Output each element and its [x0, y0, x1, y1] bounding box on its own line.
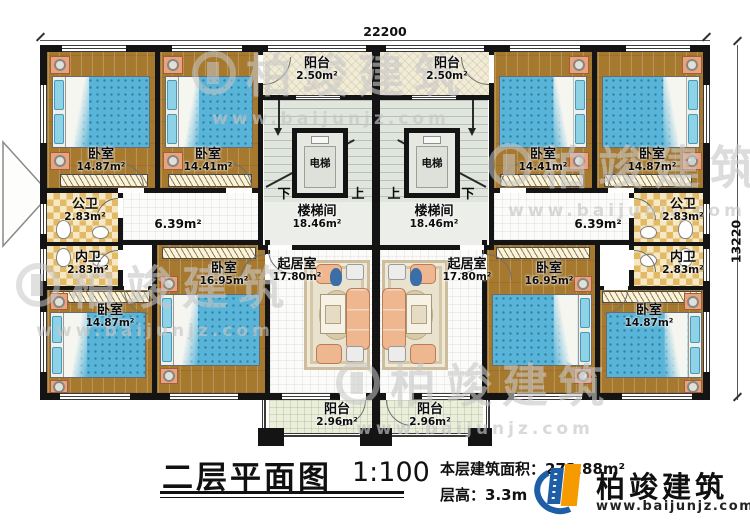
room-name: 卧室 [519, 148, 568, 162]
nightstand [163, 152, 183, 170]
floor-plan: 22200 13220 电梯 电梯 下 上 上 下 卧室14.87m² 卧室14… [0, 0, 750, 530]
bed [602, 76, 700, 148]
room-area: 2.96m² [316, 417, 357, 428]
window [703, 312, 710, 372]
room-area: 14.87m² [628, 162, 677, 173]
label-ensuite-bath-left: 内卫2.83m² [67, 251, 108, 276]
label-public-bath-left: 公卫2.83m² [64, 198, 105, 223]
room-name: 卧室 [525, 262, 574, 276]
label-bedroom-tr-outer: 卧室14.87m² [628, 148, 677, 173]
room-area: 14.41m² [184, 162, 233, 173]
room-area: 2.83m² [67, 265, 108, 276]
label-hallway-left: 6.39m² [154, 218, 201, 231]
stair-arrow [472, 100, 474, 130]
window [510, 45, 580, 52]
window [62, 45, 126, 52]
room-area: 14.87m² [625, 318, 674, 329]
armchair [346, 264, 364, 280]
bed-mattress [174, 295, 259, 365]
title-underline [160, 491, 404, 494]
stair-arrow-head [274, 128, 282, 136]
window [626, 45, 690, 52]
nightstand [569, 56, 589, 74]
nightstand [50, 293, 68, 310]
nightstand [50, 56, 70, 74]
elevator-label: 电梯 [422, 156, 443, 171]
stair-arrow [278, 100, 280, 130]
bed [160, 294, 260, 366]
room-area: 16.95m² [200, 276, 249, 287]
armchair [388, 264, 406, 280]
wall [372, 45, 380, 436]
bed [499, 76, 587, 148]
wall [258, 428, 284, 446]
label-balcony-top-left: 阳台2.50m² [296, 57, 337, 82]
floor-height-value: 3.3m [485, 486, 527, 504]
sink [92, 226, 109, 239]
door-gap [118, 250, 123, 270]
nightstand [163, 56, 183, 74]
bed-headboard [686, 77, 699, 147]
sofa [346, 288, 370, 350]
bed-mattress [500, 77, 573, 147]
room-name: 卧室 [86, 304, 135, 318]
stair-down-label: 下 [461, 183, 474, 202]
label-public-bath-right: 公卫2.83m² [662, 198, 703, 223]
room-name: 阳台 [426, 57, 467, 71]
room-area: 2.83m² [662, 265, 703, 276]
bed-headboard [166, 77, 179, 147]
nightstand [682, 56, 702, 74]
room-name: 卧室 [200, 262, 249, 276]
room-area: 17.80m² [443, 272, 492, 283]
door-gap [386, 393, 412, 400]
window [170, 393, 238, 400]
room-name: 楼梯间 [410, 205, 459, 219]
wall [152, 245, 157, 393]
bed [165, 76, 253, 148]
window [60, 393, 130, 400]
room-area: 14.87m² [86, 318, 135, 329]
stair-up-label: 上 [351, 183, 364, 202]
label-bedroom-tl-inner: 卧室14.41m² [184, 148, 233, 173]
coffee-table [320, 294, 346, 334]
room-name: 公卫 [662, 198, 703, 212]
stair-arrow-head [468, 128, 476, 136]
elevator: 电梯 [292, 128, 348, 198]
nightstand [684, 380, 702, 393]
wall [592, 45, 597, 192]
bed-mattress [66, 77, 149, 147]
title-underline [160, 497, 404, 498]
bed-mattress [493, 295, 578, 365]
sofa [382, 288, 406, 350]
label-bedroom-bl-outer: 卧室14.87m² [86, 304, 135, 329]
wall [468, 428, 492, 446]
wall [155, 45, 160, 192]
window [412, 95, 456, 100]
window [703, 85, 710, 143]
sofa-seat [410, 344, 436, 364]
door-gap [226, 188, 252, 193]
balcony-railing [386, 45, 484, 52]
nightstand [574, 368, 592, 384]
armchair [346, 346, 364, 362]
bed-mattress [179, 77, 252, 147]
room-name: 卧室 [77, 148, 126, 162]
room-area: 2.83m² [662, 212, 703, 223]
label-living-right: 起居室17.80m² [443, 258, 492, 283]
nightstand [684, 293, 702, 310]
person-figure [330, 268, 342, 286]
nightstand [160, 368, 178, 384]
label-bedroom-tr-inner: 卧室14.41m² [519, 148, 568, 173]
elevator-label: 电梯 [310, 156, 331, 171]
dimension-tick [733, 392, 742, 401]
window [40, 204, 47, 234]
room-area: 2.50m² [296, 71, 337, 82]
person-figure [410, 268, 422, 286]
room-area: 18.46m² [293, 219, 342, 230]
bed-headboard [688, 313, 701, 377]
room-name: 卧室 [628, 148, 677, 162]
room-area: 2.96m² [409, 417, 450, 428]
plan-scale: 1:100 [352, 457, 430, 488]
floor-height-label: 层高： [440, 486, 485, 504]
balcony-railing [268, 45, 366, 52]
elevator: 电梯 [404, 128, 460, 198]
window [422, 393, 470, 400]
wardrobe [496, 247, 590, 259]
bed-headboard [51, 313, 64, 377]
room-area: 14.41m² [519, 162, 568, 173]
window [40, 312, 47, 372]
brand-url: www.baijunjz.com [596, 499, 750, 514]
window [40, 249, 47, 281]
room-area: 18.46m² [410, 219, 459, 230]
label-ensuite-bath-right: 内卫2.83m² [662, 251, 703, 276]
door-gap [500, 188, 526, 193]
window [172, 45, 242, 52]
room-name: 卧室 [625, 304, 674, 318]
window [296, 95, 340, 100]
room-area: 14.87m² [77, 162, 126, 173]
label-stairwell-right: 楼梯间18.46m² [410, 205, 459, 230]
floor-area-label: 本层建筑面积： [440, 460, 545, 478]
door-gap [489, 55, 494, 83]
sofa-seat [316, 344, 342, 364]
room-name: 公卫 [64, 198, 105, 212]
wall [123, 240, 262, 245]
label-balcony-top-right: 阳台2.50m² [426, 57, 467, 82]
nightstand [569, 152, 589, 170]
nightstand [160, 276, 178, 292]
room-name: 内卫 [67, 251, 108, 265]
room-area: 6.39m² [154, 218, 201, 231]
dimension-height: 13220 [728, 220, 743, 264]
wardrobe [162, 247, 256, 259]
label-hallway-right: 6.39m² [574, 218, 621, 231]
wall [360, 428, 392, 446]
nightstand [682, 152, 702, 170]
brand-logo [534, 460, 592, 518]
room-area: 2.50m² [426, 71, 467, 82]
nightstand [50, 152, 70, 170]
label-balcony-bottom-right: 阳台2.96m² [409, 403, 450, 428]
room-name: 内卫 [662, 251, 703, 265]
window [514, 393, 582, 400]
room-name: 阳台 [316, 403, 357, 417]
stair-down-label: 下 [277, 183, 290, 202]
bed-headboard [578, 295, 591, 365]
wall [40, 242, 123, 246]
nightstand [574, 276, 592, 292]
window [40, 85, 47, 143]
sink [640, 226, 657, 239]
room-name: 阳台 [296, 57, 337, 71]
window [703, 249, 710, 281]
stair-up-label: 上 [387, 183, 400, 202]
room-area: 17.80m² [273, 272, 322, 283]
label-balcony-bottom-left: 阳台2.96m² [316, 403, 357, 428]
wall [629, 242, 703, 246]
label-stairwell-left: 楼梯间18.46m² [293, 205, 342, 230]
wall [595, 245, 600, 393]
bed-headboard [573, 77, 586, 147]
room-name: 起居室 [443, 258, 492, 272]
label-bedroom-bl-inner: 卧室16.95m² [200, 262, 249, 287]
armchair [388, 346, 406, 362]
label-bedroom-br-outer: 卧室14.87m² [625, 304, 674, 329]
label-bedroom-tl-outer: 卧室14.87m² [77, 148, 126, 173]
room-name: 楼梯间 [293, 205, 342, 219]
window [282, 393, 330, 400]
window [703, 204, 710, 234]
nightstand [50, 380, 68, 393]
bed-mattress [603, 77, 686, 147]
bed-headboard [161, 295, 174, 365]
dimension-width: 22200 [360, 24, 410, 39]
room-area: 6.39m² [574, 218, 621, 231]
window [622, 393, 692, 400]
door-gap [340, 393, 366, 400]
door-gap [608, 188, 634, 193]
label-bedroom-br-inner: 卧室16.95m² [525, 262, 574, 287]
coffee-table [406, 294, 432, 334]
wall [490, 240, 629, 245]
room-name: 卧室 [184, 148, 233, 162]
room-area: 16.95m² [525, 276, 574, 287]
room-name: 起居室 [273, 258, 322, 272]
floor-height-info: 层高：3.3m [440, 484, 527, 505]
bed [492, 294, 592, 366]
door-gap [118, 188, 144, 193]
room-name: 阳台 [409, 403, 450, 417]
dimension-line [40, 40, 710, 41]
label-living-left: 起居室17.80m² [273, 258, 322, 283]
bed [52, 76, 150, 148]
door-gap [118, 198, 123, 218]
room-area: 2.83m² [64, 212, 105, 223]
bed-headboard [53, 77, 66, 147]
